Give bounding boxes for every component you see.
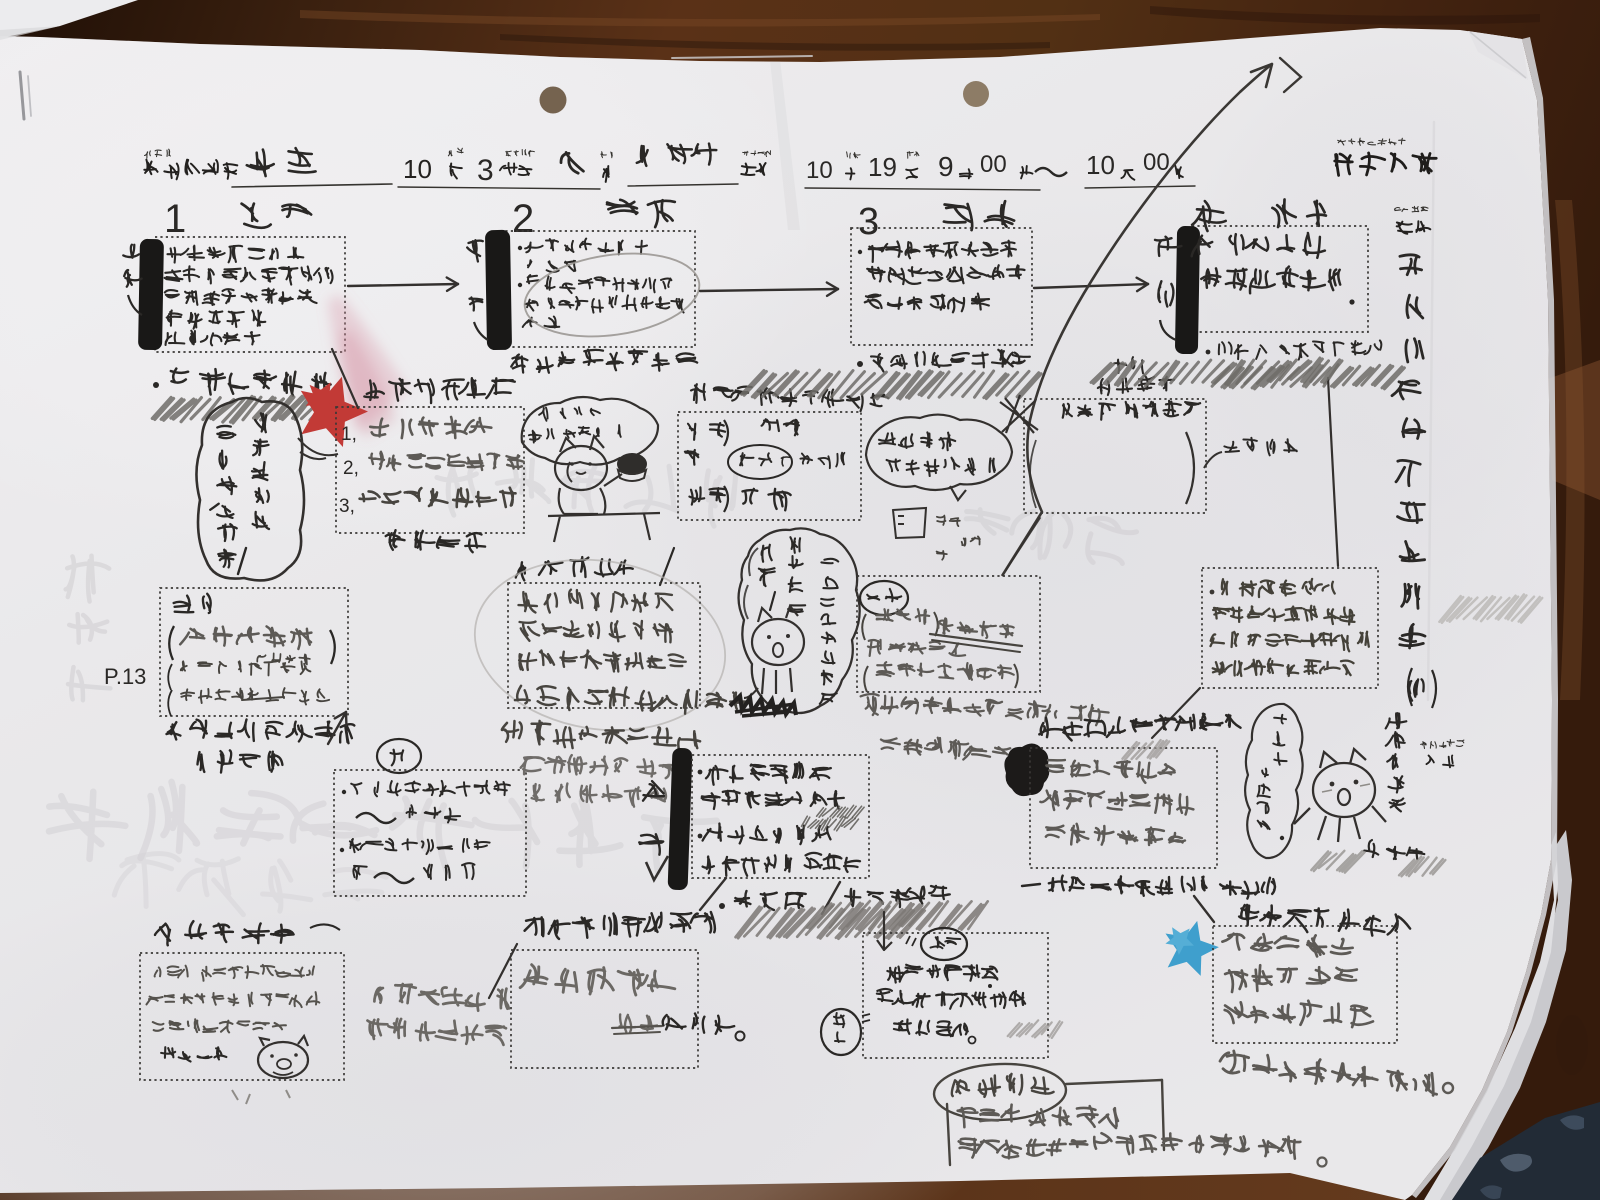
svg-text:3,: 3,: [339, 496, 355, 517]
svg-text:3: 3: [477, 154, 494, 187]
svg-text:10: 10: [1086, 150, 1115, 180]
svg-text:9: 9: [938, 151, 954, 182]
svg-text:00: 00: [1143, 149, 1170, 176]
svg-text:3: 3: [858, 201, 879, 243]
svg-text:1: 1: [164, 197, 186, 241]
svg-text:19: 19: [868, 152, 897, 182]
svg-text:2: 2: [512, 197, 534, 241]
svg-text:00: 00: [980, 151, 1007, 178]
svg-text:1,: 1,: [341, 424, 357, 445]
svg-text:10: 10: [403, 154, 432, 184]
svg-text:10: 10: [806, 157, 833, 184]
svg-text:P.13: P.13: [104, 664, 146, 689]
svg-text:2,: 2,: [343, 458, 359, 479]
